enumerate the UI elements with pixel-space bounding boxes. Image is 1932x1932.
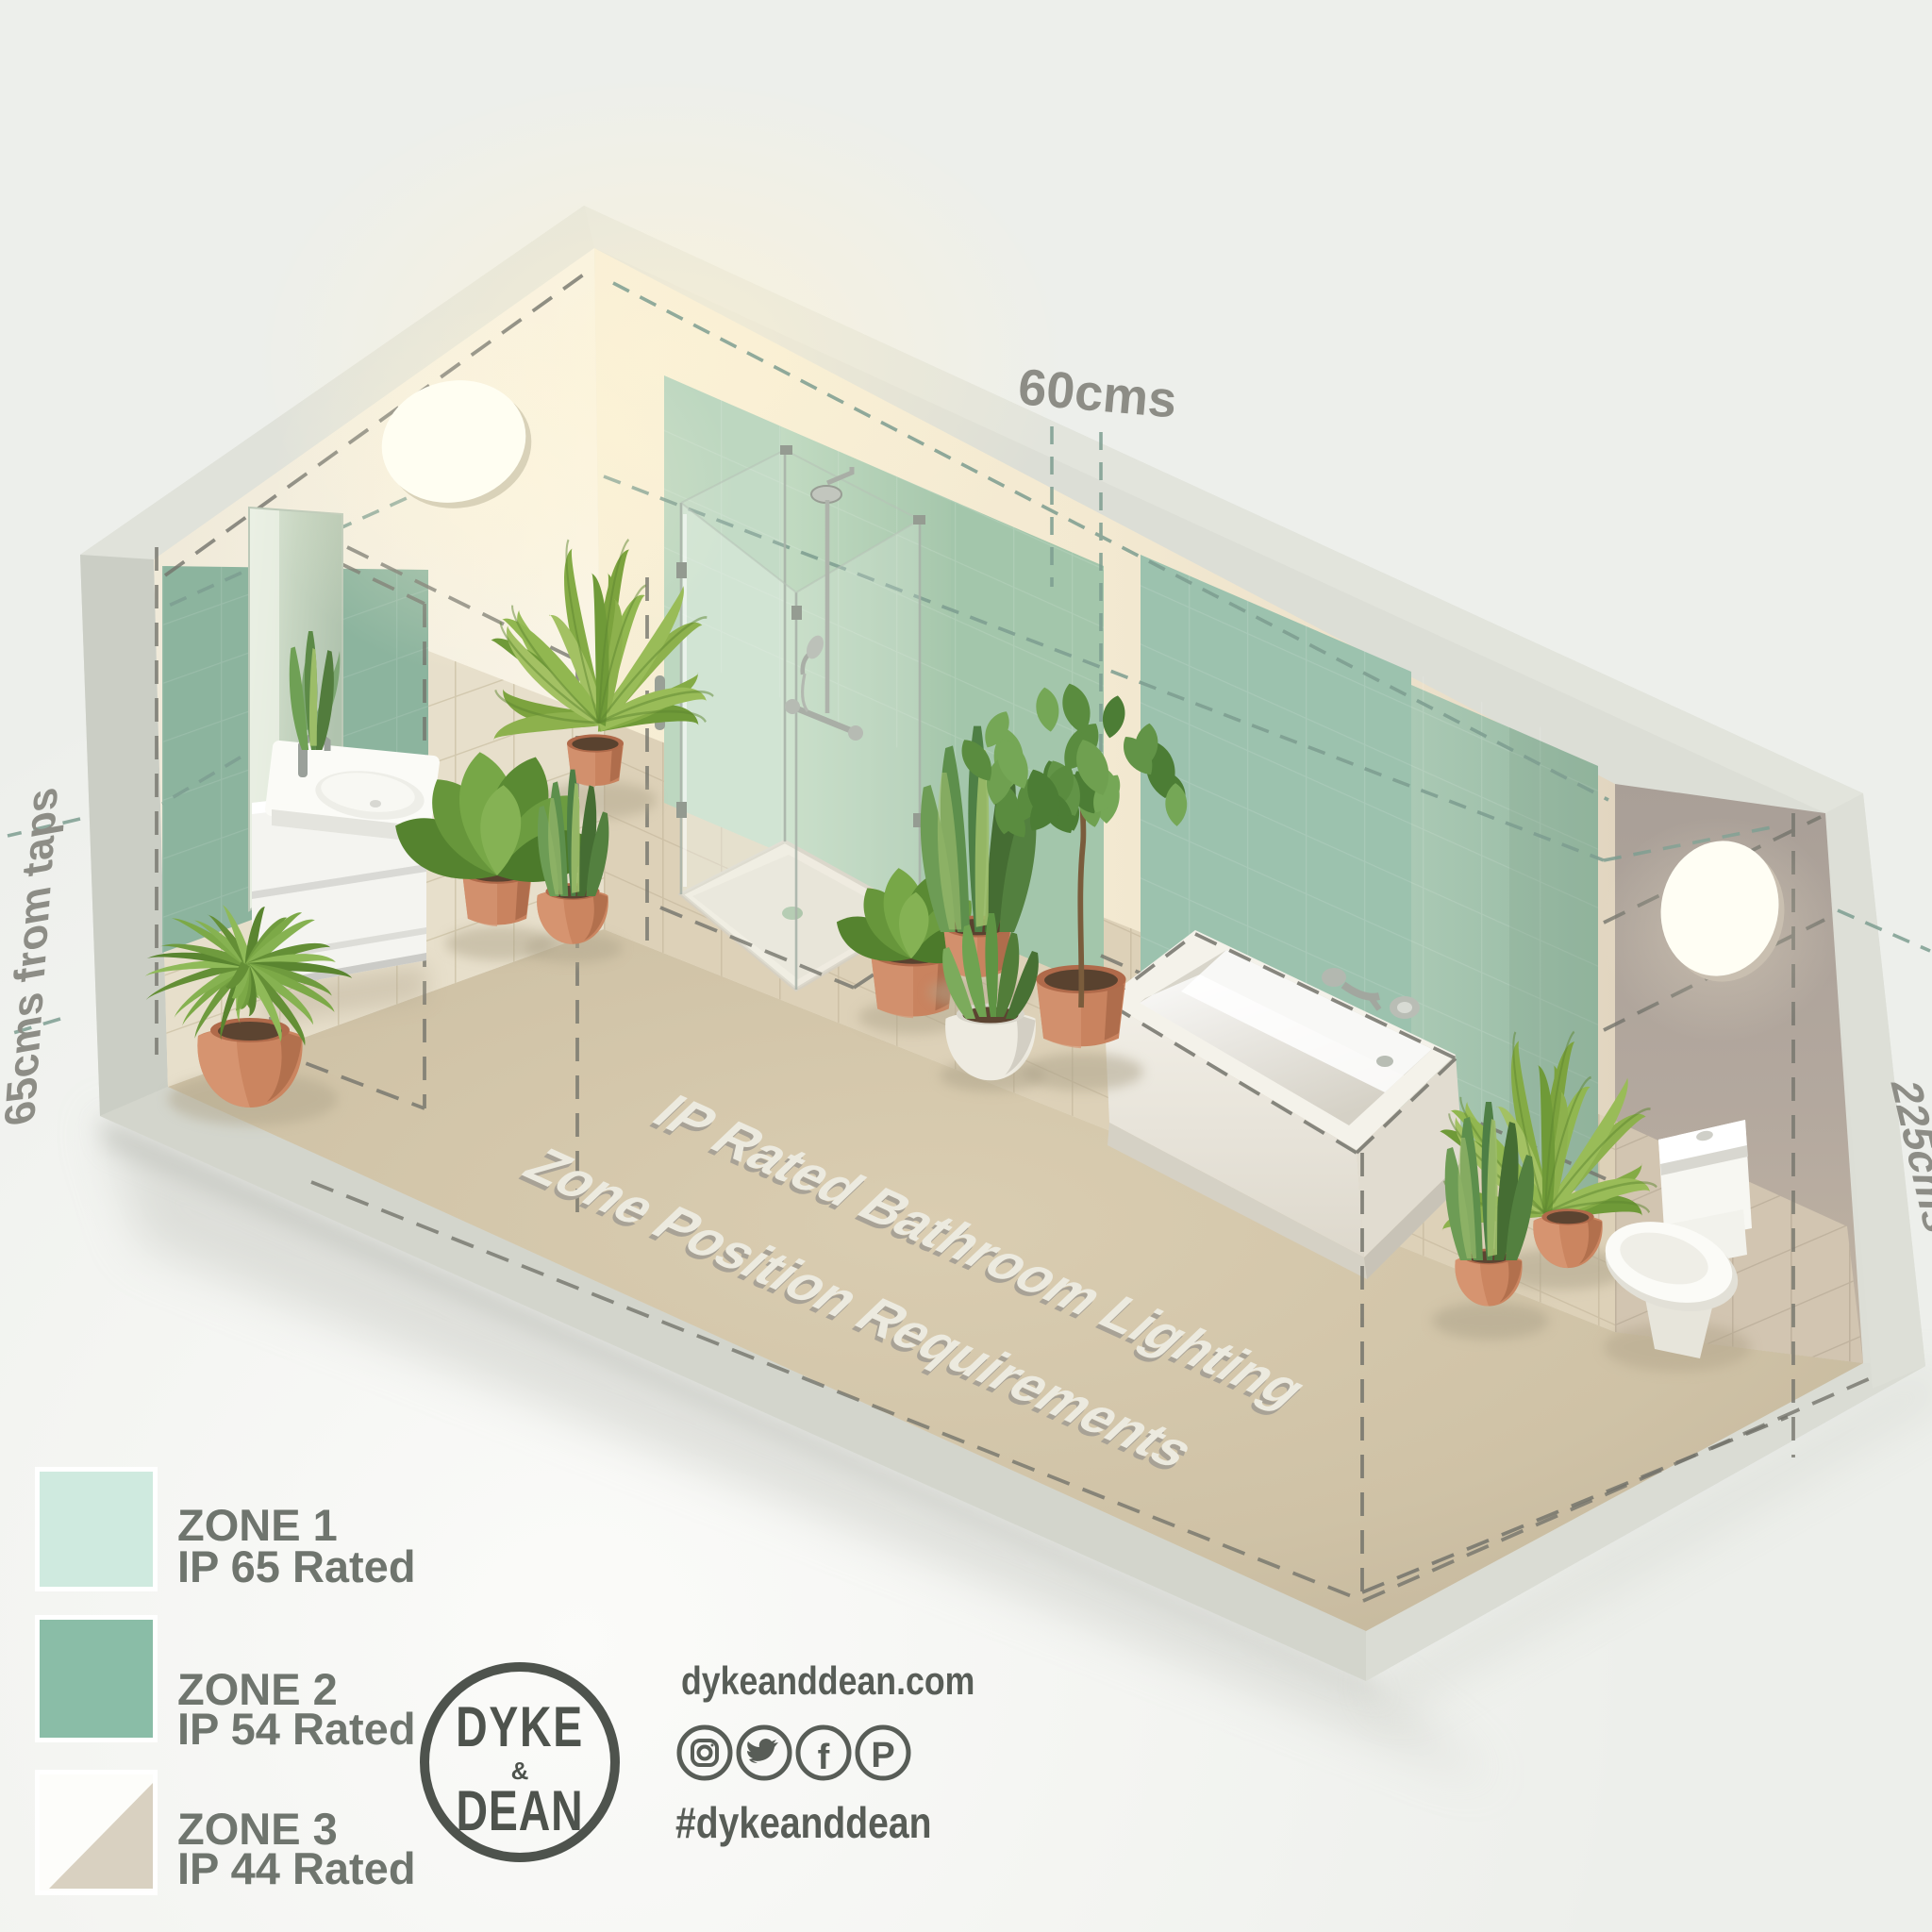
svg-text:IP 65 Rated: IP 65 Rated bbox=[177, 1541, 416, 1591]
svg-text:DYKE: DYKE bbox=[456, 1695, 584, 1758]
svg-text:#dykeanddean: #dykeanddean bbox=[675, 1799, 932, 1848]
svg-text:IP 44 Rated: IP 44 Rated bbox=[177, 1843, 416, 1893]
svg-text:f: f bbox=[818, 1738, 830, 1777]
svg-text:DEAN: DEAN bbox=[456, 1779, 583, 1842]
svg-text:P: P bbox=[871, 1736, 894, 1775]
svg-text:IP 54 Rated: IP 54 Rated bbox=[177, 1704, 416, 1754]
svg-text:dykeanddean.com: dykeanddean.com bbox=[681, 1659, 974, 1703]
